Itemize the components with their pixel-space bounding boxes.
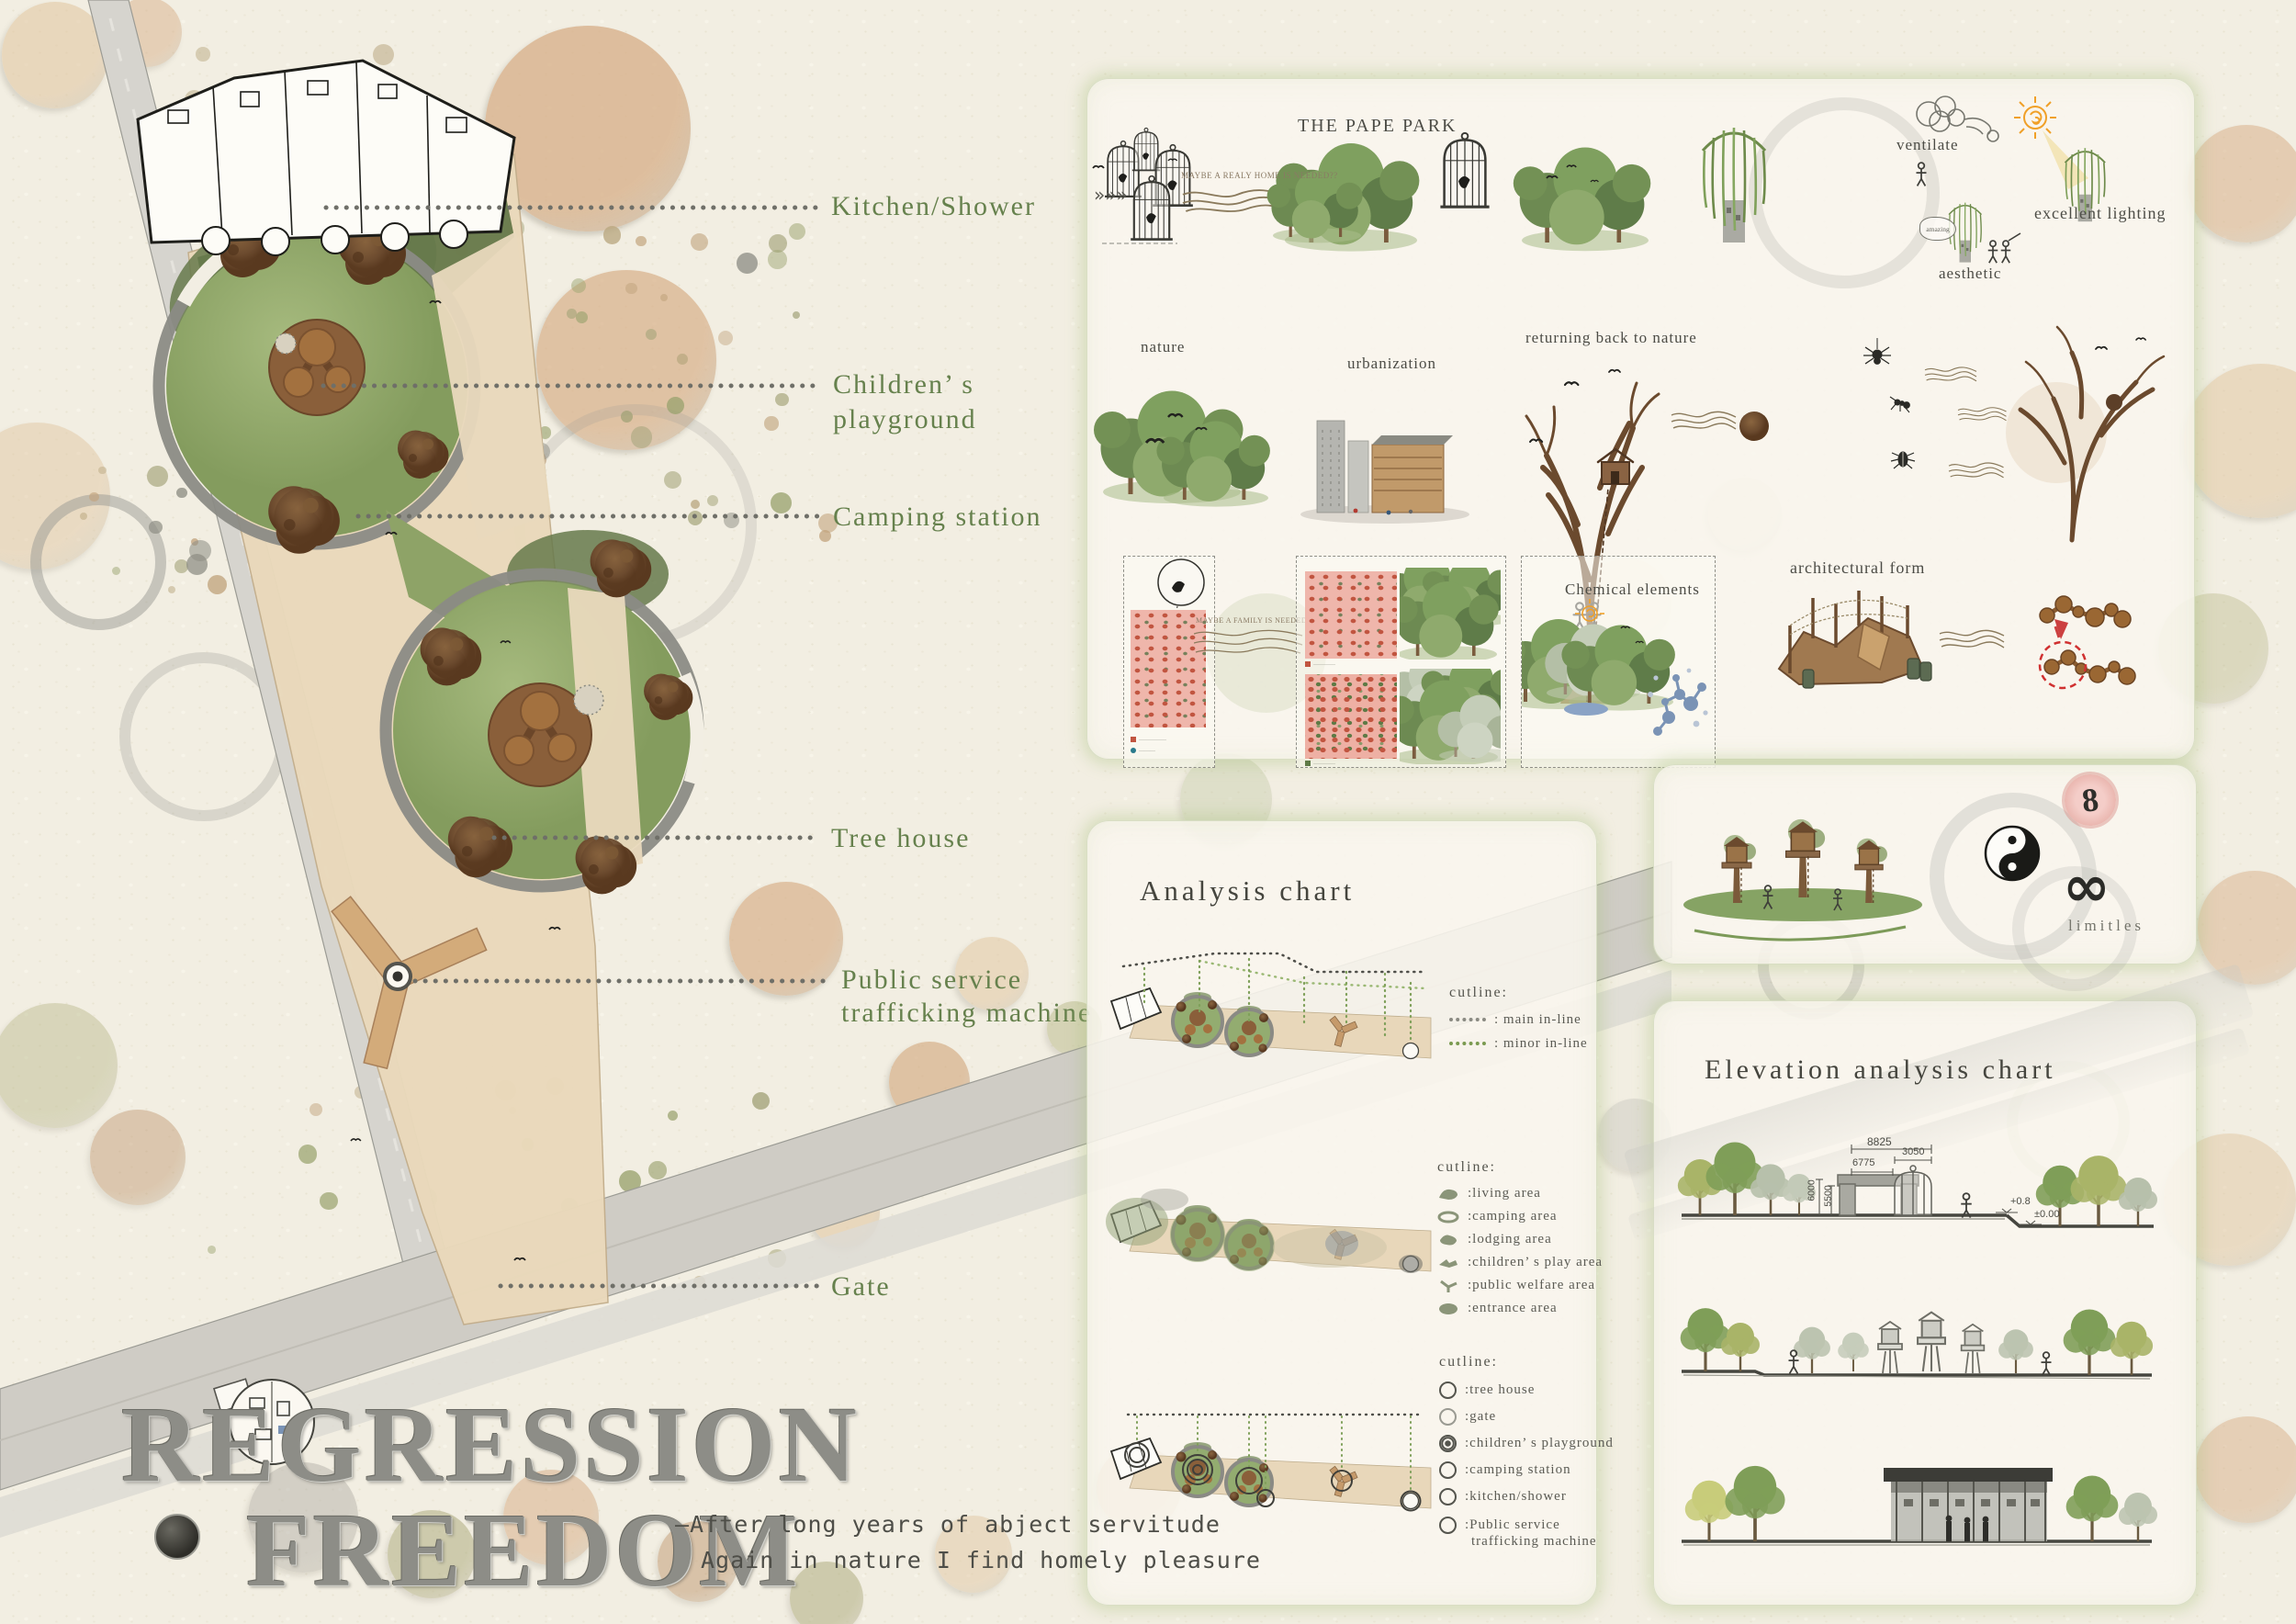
legend-areas: cutline: :living area :camping area :lod… xyxy=(1437,1159,1603,1320)
tree-house-label: :tree house xyxy=(1465,1382,1535,1398)
public-service-label-2: trafficking machine xyxy=(1471,1534,1597,1550)
node-structure-circled-icon xyxy=(2040,642,2135,688)
label-childrens-playground-1: Children’ s xyxy=(833,369,974,400)
entrance-area-icon xyxy=(1437,1302,1459,1316)
yin-yang-icon xyxy=(1983,824,2042,883)
ventilate-cloud-icon xyxy=(1917,96,1998,141)
building-elevation-icon xyxy=(1884,1468,2053,1541)
legend-heading: cutline: xyxy=(1449,985,1588,1001)
treehouse-row xyxy=(1676,796,1933,953)
limitless-label: limitles xyxy=(2068,917,2144,935)
excellent-lighting-label: excellent lighting xyxy=(2034,204,2166,223)
chemical-box: Chemical elements xyxy=(1521,556,1716,768)
title-dot-icon xyxy=(154,1514,200,1560)
concept-panel: »»» xyxy=(1086,78,2195,760)
public-service-label-1: :Public service xyxy=(1465,1517,1560,1533)
legend-heading: cutline: xyxy=(1437,1159,1603,1176)
elevation-drawings xyxy=(1674,1130,2175,1589)
aesthetic-label: aesthetic xyxy=(1939,265,2001,283)
dim-5500: 5500 xyxy=(1823,1185,1834,1206)
elevation-panel: Elevation analysis chart xyxy=(1653,1000,2197,1606)
childrens-play-area-label: :children’ s play area xyxy=(1468,1255,1603,1270)
playground-deck xyxy=(269,320,365,415)
label-public-service-1: Public service xyxy=(841,964,1022,996)
legend-points: cutline: :tree house :gate :children’ s … xyxy=(1439,1354,1614,1549)
infinity-icon: ∞ xyxy=(2063,852,2110,919)
lodging-area-icon xyxy=(1437,1233,1459,1247)
camping-station-label: :camping station xyxy=(1465,1462,1571,1478)
person-icon xyxy=(1917,163,1927,186)
label-kitchen-shower: Kitchen/Shower xyxy=(831,191,1036,222)
living-area-icon xyxy=(1437,1187,1459,1201)
dim-plus08: +0.8 xyxy=(2010,1196,2031,1207)
decor-circle xyxy=(2188,125,2296,242)
eight-glyph: 8 xyxy=(2080,780,2100,820)
architectural-form-label: architectural form xyxy=(1790,558,1925,578)
nature-label: nature xyxy=(1141,338,1185,356)
entrance-area-label: :entrance area xyxy=(1468,1301,1558,1316)
minor-inline-label: : minor in-line xyxy=(1494,1036,1588,1052)
public-welfare-area-label: :public welfare area xyxy=(1468,1278,1595,1293)
dim-8825: 8825 xyxy=(1867,1135,1892,1148)
lodging-area-label: :lodging area xyxy=(1468,1232,1552,1247)
chevrons-icon: »»» xyxy=(1094,184,1128,206)
label-tree-house: Tree house xyxy=(831,823,970,854)
label-camping-station: Camping station xyxy=(833,502,1042,533)
childrens-playground-icon xyxy=(1439,1435,1457,1452)
tree-house-icon xyxy=(1439,1382,1457,1399)
label-gate: Gate xyxy=(831,1271,891,1303)
returning-label: returning back to nature xyxy=(1525,329,1697,347)
park-title: THE PAPE PARK xyxy=(1298,116,1457,137)
maybe-note-1: MAYBE A REALY HOME IS NEEDED?? xyxy=(1181,171,1338,180)
elevation-title: Elevation analysis chart xyxy=(1705,1054,2056,1086)
living-area-label: :living area xyxy=(1468,1186,1541,1201)
maybe-note-2: MAYBE A FAMILY IS NEEDED? xyxy=(1196,616,1311,625)
nest-icon xyxy=(1739,412,1769,441)
legend-inlines: cutline: : main in-line : minor in-line xyxy=(1449,985,1588,1055)
childrens-play-area-icon xyxy=(1437,1256,1459,1270)
decor-circle xyxy=(2184,364,2296,518)
decor-circle xyxy=(2195,1416,2296,1523)
sun-icon xyxy=(2014,96,2056,139)
spider-icon xyxy=(1863,338,1891,364)
minor-inline-icon xyxy=(1449,1042,1486,1045)
label-childrens-playground-2: playground xyxy=(833,404,977,435)
birdcage-elevation-icon xyxy=(1895,1166,1931,1215)
ventilate-label: ventilate xyxy=(1896,136,1959,154)
gate-label: :gate xyxy=(1465,1409,1496,1425)
label-public-service-2: trafficking machine xyxy=(841,998,1092,1029)
kitchen-shower-label: :kitchen/shower xyxy=(1465,1489,1567,1505)
amazing-bubble: amazing xyxy=(1919,217,1956,241)
node-structure-icon xyxy=(2040,596,2131,627)
kitchen-shower-icon xyxy=(1439,1488,1457,1506)
urbanization-label: urbanization xyxy=(1347,355,1436,373)
main-title-regression: REGRESSION xyxy=(121,1382,860,1507)
city-icon xyxy=(1300,421,1469,524)
gate-icon xyxy=(1439,1408,1457,1426)
main-inline-icon xyxy=(1449,1018,1486,1021)
kitchen-shower-building xyxy=(138,61,514,255)
camping-area-icon xyxy=(1437,1210,1459,1224)
wooden-playground-icon xyxy=(1779,591,1931,688)
analysis-title: Analysis chart xyxy=(1140,874,1355,908)
public-welfare-area-icon xyxy=(1437,1279,1459,1293)
camping-station-icon xyxy=(1439,1461,1457,1479)
tagline-2: Again in nature I find homely pleasure xyxy=(701,1547,1261,1573)
dim-3050: 3050 xyxy=(1902,1146,1924,1157)
decor-circle xyxy=(2198,871,2296,985)
legend-heading: cutline: xyxy=(1439,1354,1614,1370)
beetle-icon xyxy=(1891,452,1915,468)
tagline-1: —After long years of abject servitude xyxy=(675,1511,1221,1538)
dim-6775: 6775 xyxy=(1852,1157,1874,1168)
dim-zero: ±0.00 xyxy=(2034,1209,2059,1220)
main-inline-label: : main in-line xyxy=(1494,1012,1581,1028)
childrens-playground-label: :children’ s playground xyxy=(1465,1436,1614,1451)
ant-icon xyxy=(1890,397,1909,412)
density-box: ———— ———— xyxy=(1296,556,1506,768)
dim-6000: 6000 xyxy=(1806,1179,1818,1201)
public-service-icon xyxy=(1439,1517,1457,1534)
dead-tree-icon xyxy=(2020,327,2164,540)
camping-area-label: :camping area xyxy=(1468,1209,1558,1224)
poster-board: Kitchen/Shower Children’ s playground Ca… xyxy=(0,0,2296,1624)
